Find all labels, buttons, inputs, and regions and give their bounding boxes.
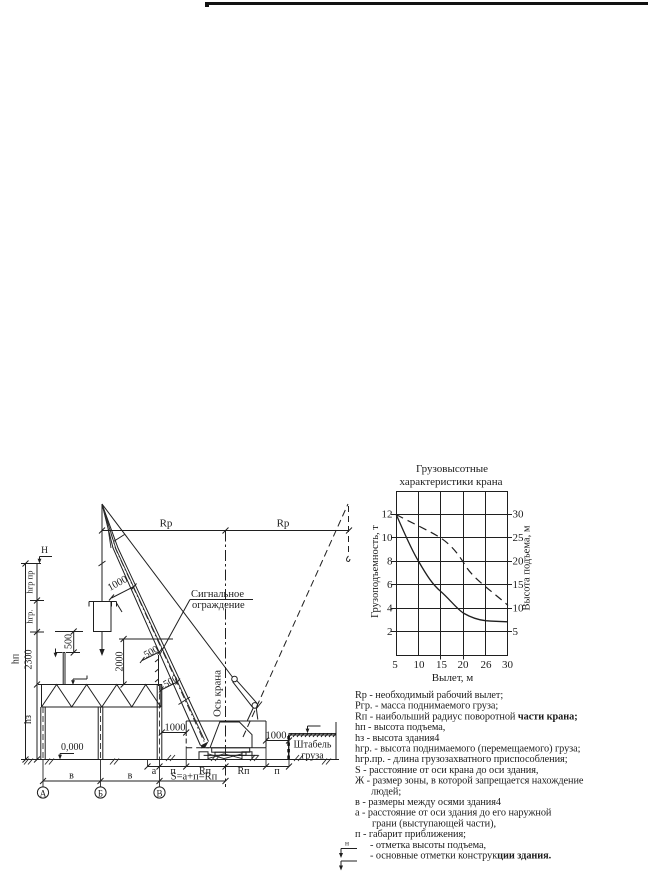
svg-text:- основные отметки конструкции: - основные отметки конструкции здания.: [370, 851, 552, 862]
svg-text:в: в: [128, 771, 133, 782]
svg-text:Грузоподъемность, т: Грузоподъемность, т: [370, 525, 381, 618]
svg-text:ограждение: ограждение: [192, 600, 245, 611]
svg-text:8: 8: [387, 556, 393, 568]
svg-text:26: 26: [481, 659, 493, 671]
svg-text:0,000: 0,000: [61, 742, 84, 753]
svg-text:Ргр. - масса поднимаемого груз: Ргр. - масса поднимаемого груза;: [355, 701, 498, 712]
svg-text:500: 500: [162, 673, 180, 690]
svg-text:в: в: [69, 771, 74, 782]
svg-text:2300: 2300: [24, 650, 35, 670]
svg-text:12: 12: [382, 509, 393, 521]
svg-text:Rp: Rp: [277, 518, 290, 530]
svg-text:грани (выступающей части),: грани (выступающей части),: [372, 818, 496, 829]
svg-text:15: 15: [436, 659, 448, 671]
svg-text:Штабель: Штабель: [294, 740, 332, 751]
svg-text:В: В: [156, 789, 162, 799]
svg-text:hгр пр: hгр пр: [25, 571, 35, 594]
svg-text:5: 5: [513, 626, 519, 638]
svg-text:Н: Н: [41, 546, 48, 556]
svg-text:- отметка высоты подъема,: - отметка высоты подъема,: [370, 840, 486, 851]
svg-text:а: а: [152, 766, 157, 777]
svg-text:Ось крана: Ось крана: [212, 670, 224, 717]
svg-text:1000: 1000: [266, 731, 287, 742]
svg-text:S - расстояние от оси крана до: S - расстояние от оси крана до оси здани…: [355, 765, 538, 776]
svg-text:Высота подъема, м: Высота подъема, м: [522, 525, 533, 610]
svg-text:1000: 1000: [165, 723, 186, 734]
svg-text:Rp - необходимый рабочий вылет: Rp - необходимый рабочий вылет;: [355, 690, 503, 701]
svg-text:30: 30: [502, 659, 514, 671]
svg-text:п - габарит приближения;: п - габарит приближения;: [355, 829, 466, 840]
svg-text:hз: hз: [23, 715, 34, 724]
svg-text:10: 10: [414, 659, 426, 671]
svg-text:500: 500: [142, 644, 160, 661]
svg-text:А: А: [40, 789, 47, 799]
svg-text:характеристики крана: характеристики крана: [400, 476, 503, 488]
svg-text:Вылет, м: Вылет, м: [432, 672, 474, 684]
svg-text:Грузовысотные: Грузовысотные: [416, 463, 488, 475]
svg-text:Rп - наибольший радиус поворот: Rп - наибольший радиус поворотной части …: [355, 711, 578, 722]
svg-text:6: 6: [387, 579, 393, 591]
svg-text:hгр.пр. - длина грузозахватног: hгр.пр. - длина грузозахватного приспосо…: [355, 754, 568, 765]
svg-text:Ж - размер зоны, в которой зап: Ж - размер зоны, в которой запрещается н…: [355, 776, 584, 787]
svg-text:hгр. - высота поднимаемого (пе: hгр. - высота поднимаемого (перемещаемог…: [355, 744, 581, 755]
svg-text:а - расстояние от оси здания д: а - расстояние от оси здания до его нару…: [355, 808, 552, 819]
svg-text:10: 10: [382, 532, 394, 544]
svg-text:Б: Б: [98, 789, 103, 799]
svg-text:hп - высота подъема,: hп - высота подъема,: [355, 722, 445, 733]
svg-text:20: 20: [458, 659, 470, 671]
svg-text:н: н: [345, 839, 349, 848]
svg-text:500: 500: [64, 634, 75, 649]
svg-text:hз - высота здания4: hз - высота здания4: [355, 733, 439, 744]
svg-text:людей;: людей;: [371, 786, 401, 797]
svg-text:5: 5: [392, 659, 398, 671]
svg-text:2: 2: [387, 626, 393, 638]
svg-text:2000: 2000: [115, 652, 126, 672]
svg-text:п: п: [274, 766, 280, 777]
svg-text:4: 4: [387, 603, 393, 615]
svg-text:Rп: Rп: [237, 766, 250, 777]
svg-text:30: 30: [513, 509, 525, 521]
svg-text:Сигнальное: Сигнальное: [191, 589, 244, 600]
svg-text:груза: груза: [301, 751, 324, 762]
svg-text:S=а+п=Rп: S=а+п=Rп: [171, 772, 218, 783]
svg-text:в - размеры между осями здания: в - размеры между осями здания4: [355, 797, 501, 808]
svg-text:hп: hп: [11, 653, 22, 664]
svg-text:hгр.: hгр.: [25, 609, 35, 623]
svg-text:Rp: Rp: [160, 518, 173, 530]
